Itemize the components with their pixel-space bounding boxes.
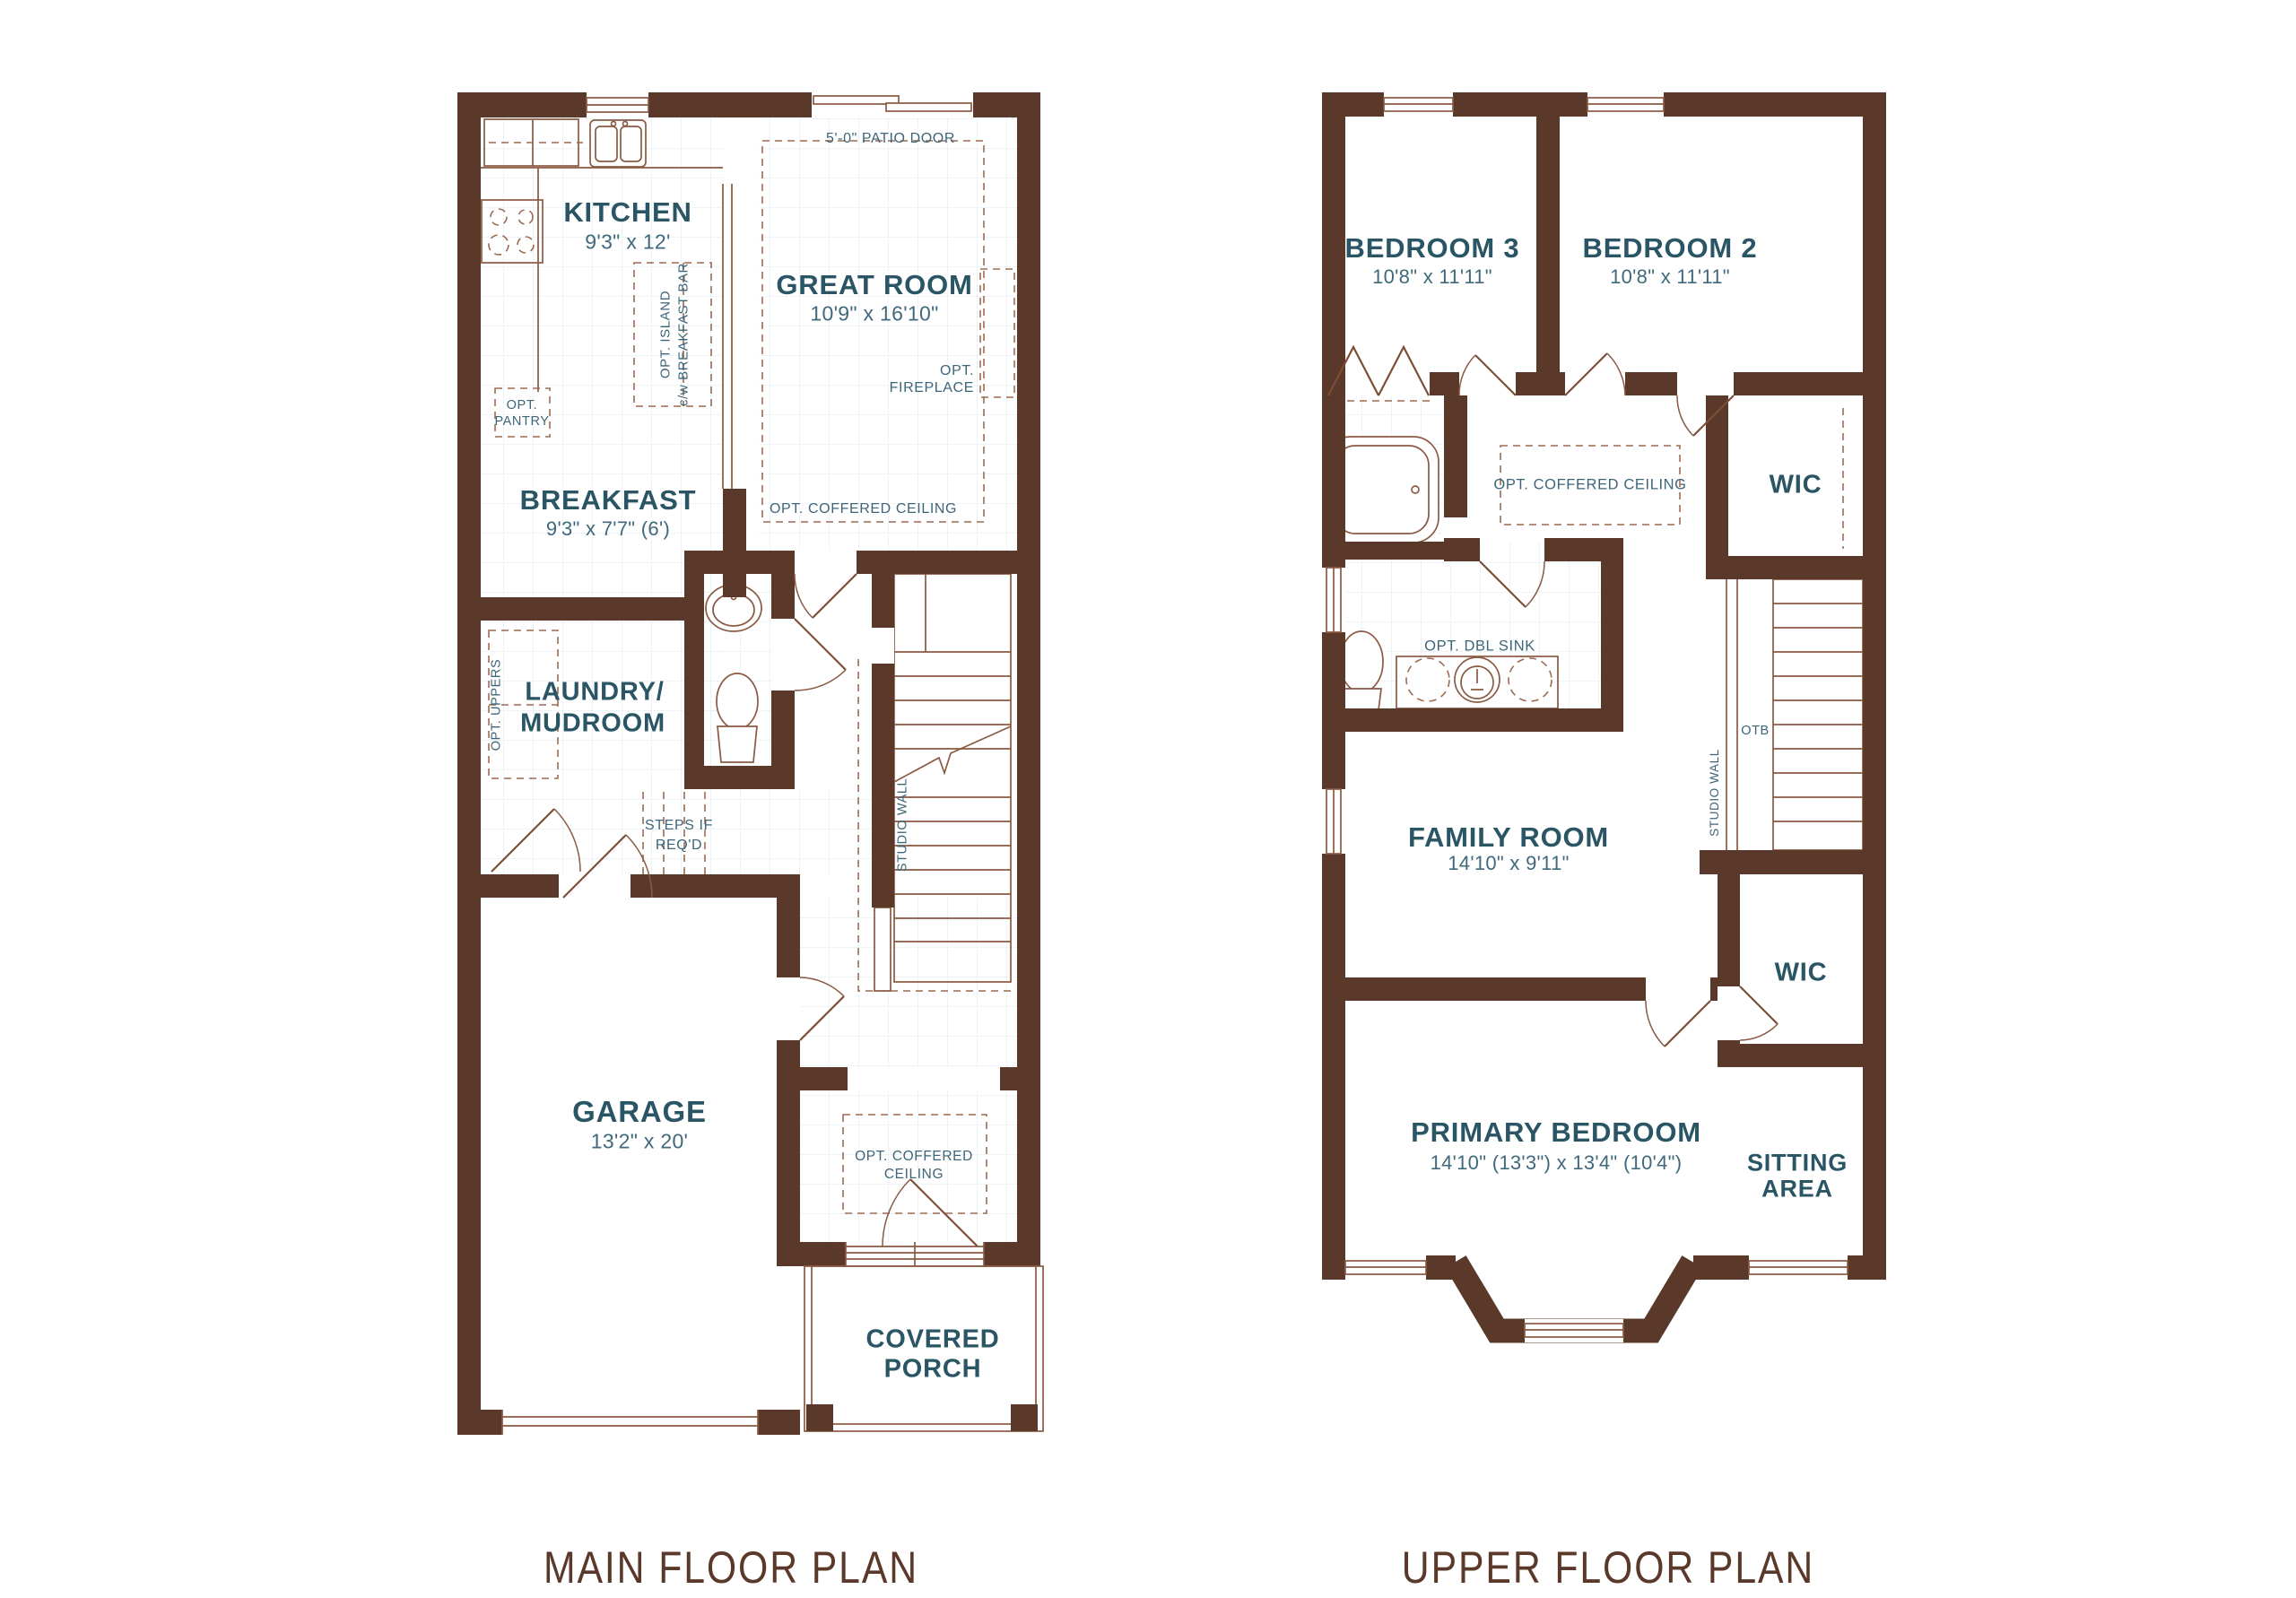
studio-wall-label-upper: STUDIO WALL (1707, 749, 1723, 837)
breakfast-dims: 9'3" x 7'7" (6') (546, 517, 670, 541)
primary-bedroom-label: PRIMARY BEDROOM (1411, 1116, 1701, 1149)
sitting-area-label-1: SITTING (1747, 1150, 1848, 1177)
kitchen-label: KITCHEN (563, 196, 691, 229)
garage-label: GARAGE (572, 1095, 707, 1129)
garage-dims: 13'2" x 20' (591, 1130, 689, 1154)
great-coffered-label: OPT. COFFERED CEILING (770, 501, 957, 517)
studio-wall-label-main: STUDIO WALL (895, 778, 912, 872)
bathroom-vanity (1396, 656, 1558, 708)
great-room-dims: 10'9" x 16'10" (810, 302, 938, 326)
floor-plan-graphics (0, 0, 2296, 1598)
opt-fireplace-label-1: OPT. (940, 363, 974, 379)
b edroom2-label: BEDROOM 2 (1583, 232, 1758, 265)
opt-island-label: OPT. ISLAND c/w BREAKFAST BAR (657, 263, 692, 406)
floor-plan-page: 5'-0" PATIO DOOR KITCHEN 9'3" x 12' GREA… (0, 0, 2296, 1598)
upper-coffered-label: OPT. COFFERED CEILING (1493, 477, 1686, 494)
opt-island-line2: c/w BREAKFAST BAR (674, 263, 692, 406)
family-room-label: FAMILY ROOM (1408, 821, 1609, 854)
bedroom2-dims: 10'8" x 11'11" (1610, 265, 1730, 289)
bathroom-toilet (1340, 631, 1383, 710)
opt-pantry-label-2: PANTRY (494, 414, 549, 429)
steps-label-1: STEPS IF (645, 818, 713, 834)
bedroom3-dims: 10'8" x 11'11" (1372, 265, 1492, 289)
main-floor-caption: MAIN FLOOR PLAN (544, 1542, 918, 1594)
upper-floor-caption: UPPER FLOOR PLAN (1402, 1542, 1814, 1594)
primary-bedroom-dims: 14'10" (13'3") x 13'4" (10'4") (1431, 1151, 1683, 1175)
great-room-label: GREAT ROOM (776, 269, 972, 301)
stair-break-line (894, 726, 1011, 782)
steps-label-2: REQ'D (656, 838, 702, 854)
upper-stairs (1726, 579, 1863, 850)
foyer-coffered-label-1: OPT. COFFERED (855, 1149, 973, 1165)
studio-wall-panel (874, 908, 891, 991)
family-room-dims: 14'10" x 9'11" (1448, 852, 1569, 875)
opt-island-line1: OPT. ISLAND (657, 263, 675, 406)
foyer-coffered-label-2: CEILING (884, 1167, 944, 1183)
breakfast-label: BREAKFAST (520, 484, 697, 517)
porch-post (806, 1404, 833, 1431)
opt-pantry-label-1: OPT. (507, 398, 538, 413)
laundry-label-1: LAUNDRY/ (525, 678, 664, 708)
bedroom3-label: BEDROOM 3 (1345, 232, 1520, 265)
opt-dbl-sink-label: OPT. DBL SINK (1424, 638, 1535, 656)
kitchen-sink (590, 120, 646, 167)
wic-upper-label: WIC (1770, 471, 1822, 500)
sitting-area-label-2: AREA (1761, 1176, 1833, 1203)
porch-post (1011, 1404, 1038, 1431)
covered-porch-label-1: COVERED (865, 1325, 999, 1355)
kitchen-dims: 9'3" x 12' (585, 230, 670, 255)
covered-porch-label-2: PORCH (884, 1355, 982, 1385)
opt-uppers-label: OPT. UPPERS (489, 659, 506, 751)
opt-fireplace-label-2: FIREPLACE (890, 380, 974, 396)
wic-lower-label: WIC (1775, 959, 1828, 988)
powder-toilet (717, 673, 758, 762)
patio-door-label: 5'-0" PATIO DOOR (826, 131, 955, 147)
laundry-label-2: MUDROOM (520, 709, 665, 739)
otb-label: OTB (1741, 724, 1770, 738)
